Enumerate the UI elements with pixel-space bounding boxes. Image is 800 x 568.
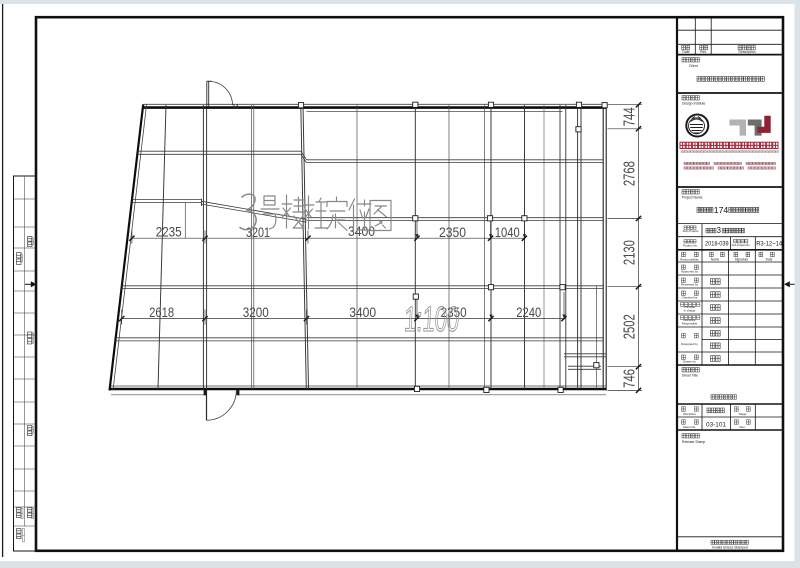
svg-text:Rev.: Rev.: [740, 425, 746, 429]
svg-text:3200: 3200: [243, 305, 269, 320]
svg-text:R3-12~14: R3-12~14: [756, 240, 782, 247]
svg-text:2350: 2350: [439, 225, 466, 240]
svg-text:Sub-Project: Sub-Project: [683, 229, 699, 233]
svg-text:Design Institute: Design Institute: [682, 102, 705, 106]
svg-text:Reviewed by: Reviewed by: [681, 282, 699, 286]
svg-text:Discipline: Discipline: [683, 412, 696, 416]
svg-text:Project No.: Project No.: [683, 243, 698, 247]
svg-text:174: 174: [714, 206, 729, 215]
svg-text:2618: 2618: [149, 305, 174, 320]
svg-text:In charge: In charge: [684, 309, 696, 313]
svg-text:3400: 3400: [349, 305, 376, 320]
svg-text:2502: 2502: [621, 314, 638, 339]
svg-text:746: 746: [621, 369, 638, 388]
svg-text:Release Stamp: Release Stamp: [682, 440, 705, 444]
svg-text:Date: Date: [682, 50, 689, 54]
svg-text:Invalid Unless Stamped: Invalid Unless Stamped: [712, 545, 748, 549]
svg-text:Sub-Project No.: Sub-Project No.: [732, 243, 751, 247]
svg-text:Client: Client: [689, 64, 698, 68]
svg-text:Signature: Signature: [735, 258, 749, 262]
svg-text:Responsible: Responsible: [682, 322, 698, 326]
svg-text:03-101: 03-101: [706, 422, 726, 429]
svg-text:Sheet No.: Sheet No.: [683, 425, 697, 429]
svg-text:3400: 3400: [348, 224, 375, 239]
svg-text:2235: 2235: [156, 225, 182, 240]
svg-text:Sheet Title: Sheet Title: [682, 374, 698, 378]
svg-text:Name: Name: [711, 258, 720, 262]
svg-text:Rev.: Rev.: [700, 50, 707, 54]
svg-text:Project Name: Project Name: [682, 196, 703, 200]
svg-text:2018-039: 2018-039: [705, 240, 729, 247]
svg-text:Responsibility: Responsibility: [680, 258, 699, 262]
svg-text:744: 744: [621, 107, 638, 126]
svg-text:1040: 1040: [495, 225, 520, 240]
svg-text:Drawn by: Drawn by: [683, 359, 696, 363]
svg-text:1:100: 1:100: [403, 300, 460, 339]
svg-text:2240: 2240: [516, 305, 541, 320]
svg-text:Checked by: Checked by: [682, 295, 698, 299]
svg-text:Description: Description: [739, 50, 756, 54]
svg-text:Approved by: Approved by: [681, 269, 698, 273]
svg-text:2130: 2130: [621, 240, 638, 265]
svg-text:3: 3: [717, 226, 721, 235]
svg-text:Designed by: Designed by: [681, 342, 698, 346]
svg-text:Stage: Stage: [739, 412, 747, 416]
svg-text:2768: 2768: [621, 161, 638, 186]
svg-text:3201: 3201: [246, 225, 270, 240]
svg-text:Date: Date: [766, 258, 773, 262]
